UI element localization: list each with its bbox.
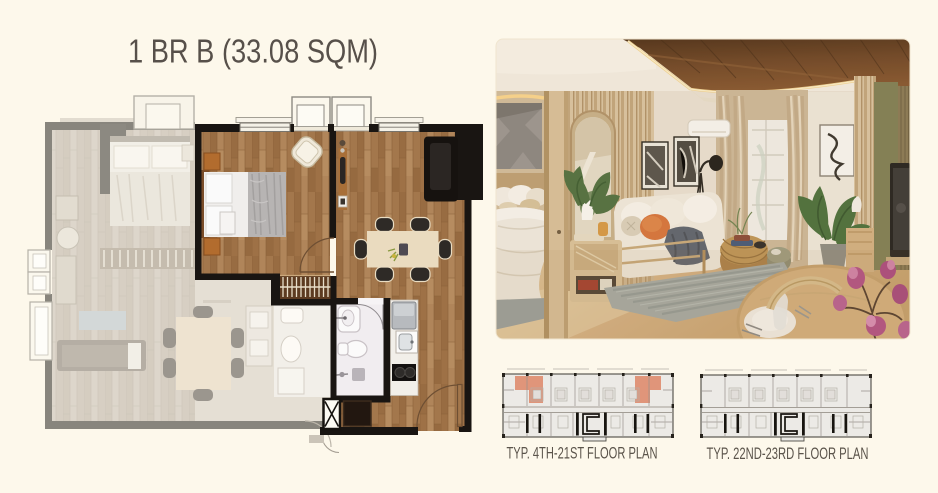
svg-text:1 BR B (33.08 SQM): 1 BR B (33.08 SQM) xyxy=(128,33,378,70)
svg-text:TYP. 4TH-21ST FLOOR PLAN: TYP. 4TH-21ST FLOOR PLAN xyxy=(507,445,658,463)
svg-text:TYP. 22ND-23RD FLOOR PLAN: TYP. 22ND-23RD FLOOR PLAN xyxy=(707,445,869,463)
